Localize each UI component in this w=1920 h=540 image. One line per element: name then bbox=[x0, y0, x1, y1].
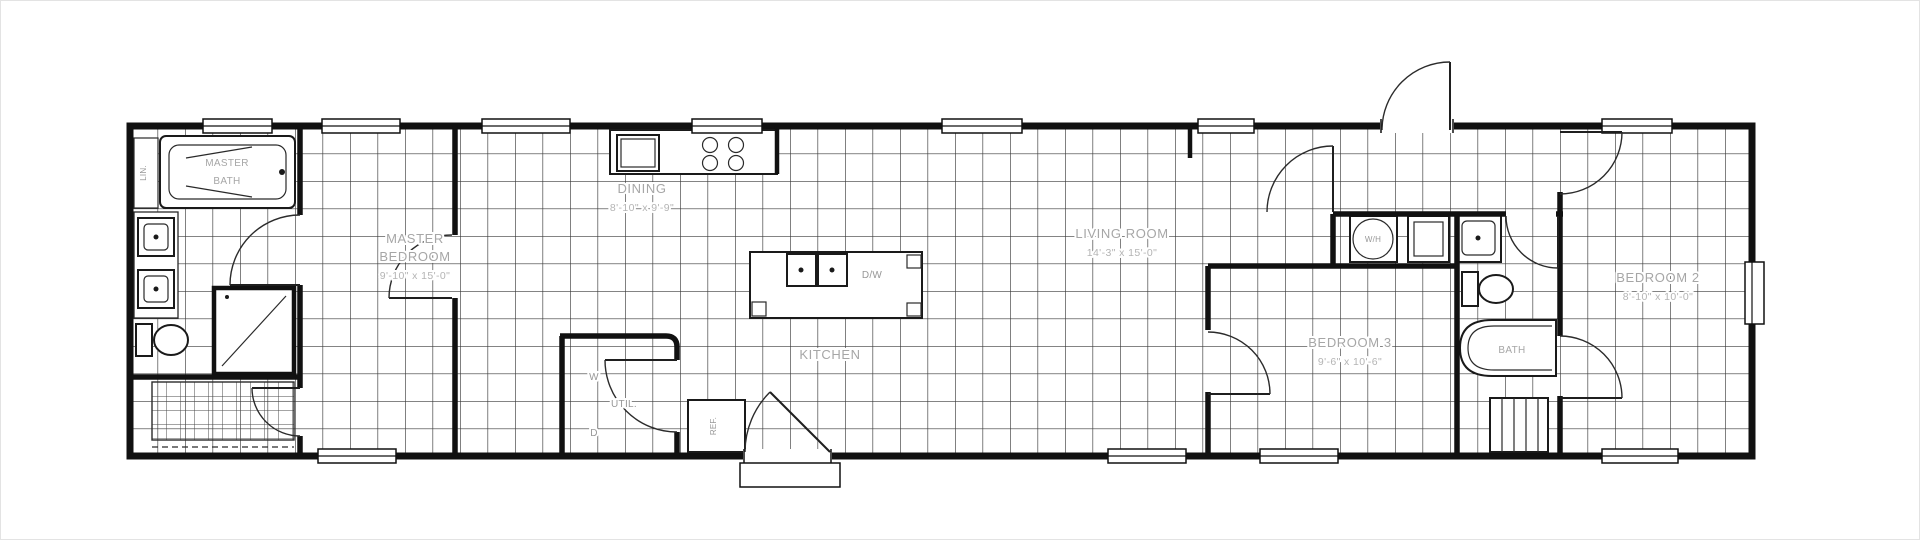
floorplan-drawing: MASTER BATH MASTER BEDROOM 9'-10" x 15'-… bbox=[0, 0, 1920, 540]
master-bath-label-2: BATH bbox=[213, 176, 240, 187]
window bbox=[318, 449, 396, 463]
hall-toilet-bowl bbox=[1479, 275, 1513, 303]
bedroom3-dims: 9'-6" x 10'-6" bbox=[1318, 356, 1382, 368]
water-heater-label: W/H bbox=[1365, 235, 1381, 244]
kitchen-label: KITCHEN bbox=[799, 347, 860, 362]
vanity-sink-1-drain bbox=[154, 235, 159, 240]
floorplan-page: MASTER BATH MASTER BEDROOM 9'-10" x 15'-… bbox=[0, 0, 1920, 540]
master-bath-label: MASTER bbox=[205, 158, 248, 169]
shower-head-icon bbox=[225, 295, 229, 299]
bedroom3-label: BEDROOM 3 bbox=[1308, 335, 1391, 350]
dining-label: DINING bbox=[617, 181, 666, 196]
living-room-dims: 14'-3" x 15'-0" bbox=[1087, 247, 1158, 259]
tub-faucet-icon bbox=[279, 169, 285, 175]
utility-label: UTIL. bbox=[611, 399, 637, 410]
refrigerator-label: REF. bbox=[709, 417, 718, 435]
dining-dims: 8'-10" x 9'-9" bbox=[610, 202, 674, 214]
hall-vanity-drain bbox=[1476, 236, 1481, 241]
window bbox=[322, 119, 400, 133]
island-sink-1-drain bbox=[799, 268, 804, 273]
master-bedroom-label: MASTER bbox=[386, 231, 444, 246]
toilet-bowl bbox=[154, 325, 188, 355]
closet-floor bbox=[152, 382, 294, 440]
bath-label: BATH bbox=[1498, 345, 1525, 356]
dishwasher-label: D/W bbox=[862, 270, 883, 281]
island-sink-2-drain bbox=[830, 268, 835, 273]
washer-label: W bbox=[589, 372, 599, 383]
dryer-label: D bbox=[590, 428, 598, 439]
toilet-tank bbox=[136, 324, 152, 356]
window bbox=[1602, 119, 1672, 133]
master-bedroom-dims: 9'-10" x 15'-0" bbox=[380, 270, 451, 282]
door-step bbox=[740, 463, 840, 487]
bedroom2-dims: 8'-10" x 10'-0" bbox=[1623, 291, 1694, 303]
master-bedroom-label-2: BEDROOM bbox=[379, 249, 450, 264]
vanity-sink-2-drain bbox=[154, 287, 159, 292]
hall-toilet-tank bbox=[1462, 272, 1478, 306]
window bbox=[942, 119, 1022, 133]
living-room-label: LIVING ROOM bbox=[1075, 226, 1168, 241]
front-door bbox=[1380, 62, 1454, 133]
window bbox=[1108, 449, 1186, 463]
window bbox=[482, 119, 570, 133]
bedroom2-label: BEDROOM 2 bbox=[1616, 270, 1699, 285]
window bbox=[203, 119, 272, 133]
range bbox=[617, 135, 659, 171]
window bbox=[1602, 449, 1678, 463]
window bbox=[1198, 119, 1254, 133]
window bbox=[1260, 449, 1338, 463]
garden-tub bbox=[160, 136, 295, 208]
linen-shelves bbox=[1490, 398, 1548, 452]
linen-label: LIN. bbox=[139, 165, 148, 180]
master-closet bbox=[152, 382, 294, 447]
window bbox=[1745, 262, 1764, 324]
window bbox=[692, 119, 762, 133]
